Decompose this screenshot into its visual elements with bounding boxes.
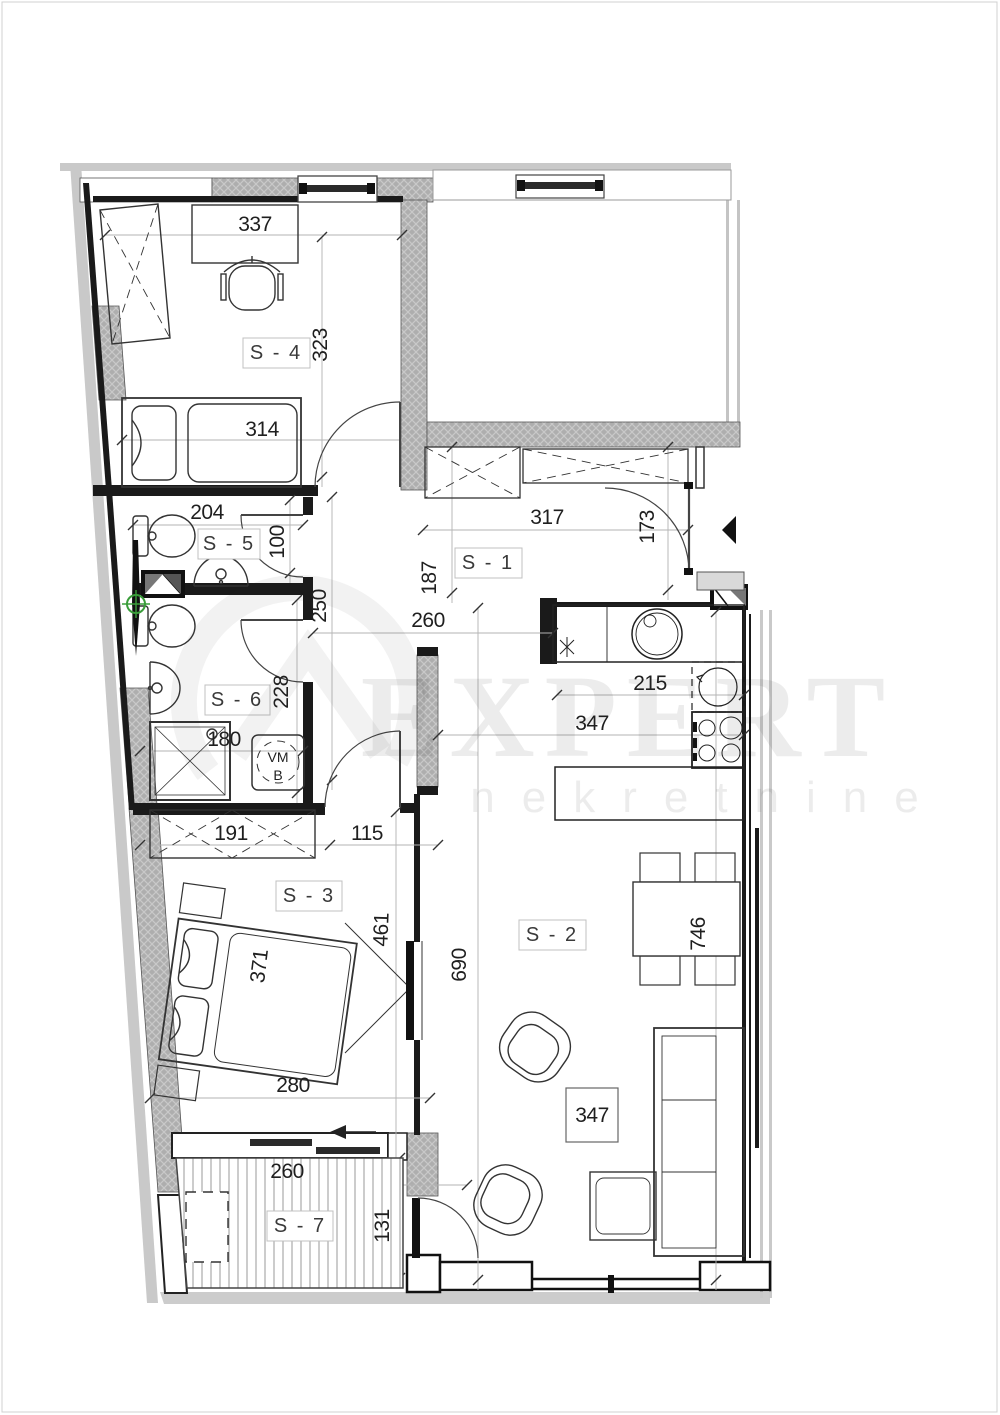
sliding-door-panel	[406, 941, 414, 1040]
entrance-marker-icon	[722, 516, 736, 544]
watermark-brand: EXPERT	[361, 651, 895, 782]
parapet-right	[700, 1262, 770, 1290]
entry-threshold	[697, 572, 744, 590]
dim-371: 371	[246, 948, 273, 984]
dim-690: 690	[448, 948, 471, 982]
ac-unit	[186, 1192, 228, 1262]
room-label-s2: S - 2	[526, 924, 578, 946]
room-label-s7: S - 7	[274, 1215, 326, 1237]
watermark-subtitle: nekretnine	[470, 773, 945, 822]
parapet-mid	[440, 1262, 532, 1290]
washing-machine-label: VM	[268, 749, 289, 765]
armchair-icon-1	[490, 1003, 580, 1092]
washing-machine-label-b: B	[273, 767, 282, 783]
room-label-s1: S - 1	[462, 552, 514, 574]
dim-317: 317	[530, 506, 564, 529]
dim-337: 337	[238, 213, 272, 236]
room-s2	[466, 853, 744, 1256]
window-terrace-1	[250, 1139, 312, 1146]
dim-746: 746	[687, 917, 710, 951]
dim-260-terrace: 260	[270, 1160, 304, 1183]
washing-machine-icon: VM B	[252, 735, 304, 790]
coffee-table-dim-box: 347	[566, 1088, 618, 1142]
dim-204: 204	[190, 501, 224, 524]
parapet-left	[407, 1255, 440, 1292]
dim-280: 280	[276, 1074, 310, 1097]
window-terrace-2	[316, 1147, 380, 1154]
dim-131: 131	[371, 1209, 394, 1243]
armchair-icon-2	[466, 1157, 550, 1243]
door-terrace	[412, 1198, 478, 1258]
wardrobe-icon	[100, 204, 170, 344]
sink-icon	[194, 556, 248, 586]
dim-323: 323	[309, 328, 332, 362]
floor-plan-drawing: VM B	[0, 0, 1000, 1415]
dim-187: 187	[418, 561, 441, 595]
room-s1	[425, 447, 688, 498]
shaft-left	[143, 572, 183, 596]
toilet-icon	[133, 515, 195, 557]
office-chair-icon	[221, 256, 283, 310]
room-label-s5: S - 5	[203, 533, 255, 555]
dim-173: 173	[636, 510, 659, 544]
room-label-s3: S - 3	[283, 885, 335, 907]
single-bed-icon	[122, 398, 301, 487]
dim-461: 461	[369, 913, 393, 947]
dim-347-living: 347	[575, 1104, 609, 1127]
dim-314: 314	[245, 418, 279, 441]
door-s4	[315, 402, 400, 487]
dim-115: 115	[351, 822, 383, 845]
room-label-s4: S - 4	[250, 342, 302, 364]
floor-plan-page: VM B	[0, 0, 1000, 1415]
double-bed-icon	[154, 883, 362, 1120]
entry-pillar	[696, 447, 704, 488]
dim-260-hall: 260	[411, 609, 445, 632]
watermark: EXPERT nekretnine	[184, 588, 946, 822]
dim-191: 191	[214, 822, 248, 845]
dim-100: 100	[266, 525, 289, 559]
